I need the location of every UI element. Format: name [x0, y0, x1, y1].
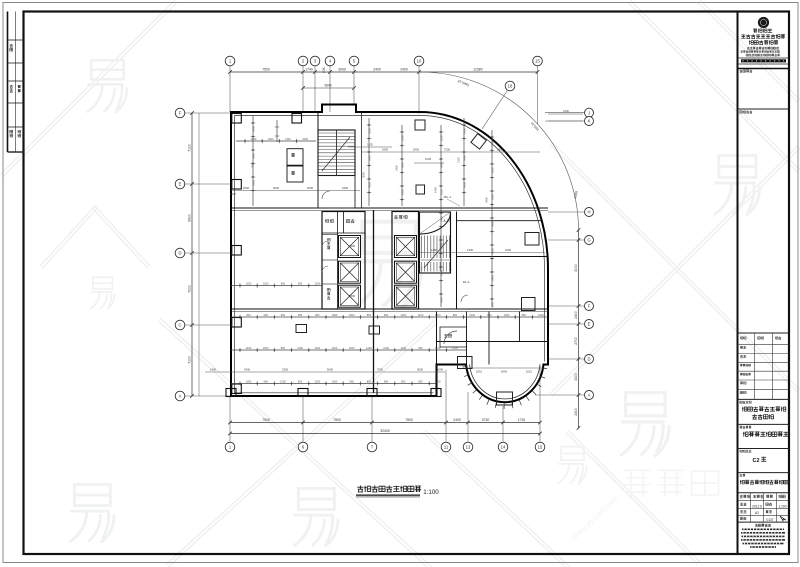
- svg-text:E: E: [588, 322, 591, 327]
- svg-text:2000: 2000: [243, 186, 250, 190]
- svg-text:1635: 1635: [367, 143, 373, 147]
- svg-text:11: 11: [444, 445, 449, 450]
- svg-text:1100: 1100: [435, 346, 441, 350]
- svg-text:1200: 1200: [332, 346, 338, 350]
- svg-text:1200: 1200: [314, 346, 320, 350]
- svg-text:2400: 2400: [463, 128, 467, 134]
- svg-text:3400: 3400: [491, 275, 495, 281]
- svg-text:2400: 2400: [401, 189, 405, 195]
- svg-text:850: 850: [522, 313, 527, 317]
- svg-text:2400: 2400: [505, 248, 512, 252]
- svg-text:3000: 3000: [273, 186, 280, 190]
- svg-text:7500: 7500: [262, 67, 270, 71]
- svg-text:2400: 2400: [349, 294, 356, 298]
- svg-text:1000: 1000: [263, 346, 269, 350]
- svg-text:1000: 1000: [435, 379, 441, 383]
- svg-text:DL-2: DL-2: [463, 280, 470, 284]
- svg-text:850: 850: [281, 346, 286, 350]
- svg-text:960: 960: [264, 379, 269, 383]
- svg-text:800: 800: [384, 313, 389, 317]
- svg-text:3300: 3300: [574, 373, 578, 381]
- svg-text:3400: 3400: [251, 162, 255, 168]
- svg-text:1400: 1400: [434, 187, 438, 193]
- svg-text:J: J: [588, 110, 590, 115]
- svg-text:7500: 7500: [377, 368, 384, 372]
- svg-text:5000: 5000: [327, 368, 334, 372]
- svg-text:1200: 1200: [246, 281, 252, 285]
- svg-text:3400: 3400: [440, 216, 444, 222]
- svg-text:960: 960: [487, 313, 492, 317]
- svg-text:C: C: [178, 323, 181, 328]
- svg-text:H: H: [587, 210, 590, 215]
- svg-text:D: D: [587, 357, 590, 362]
- svg-text:3400: 3400: [463, 155, 467, 161]
- svg-text:A-09: A-09: [443, 219, 450, 223]
- svg-text:5000: 5000: [501, 370, 508, 374]
- svg-text:3400: 3400: [485, 197, 489, 203]
- svg-text:G: G: [587, 238, 590, 243]
- svg-text:2400: 2400: [395, 165, 399, 171]
- svg-text:1500: 1500: [563, 109, 569, 113]
- svg-text:1200: 1200: [263, 281, 269, 285]
- svg-text:1000: 1000: [314, 281, 320, 285]
- svg-text:2300: 2300: [342, 186, 349, 190]
- svg-text:800: 800: [246, 313, 251, 317]
- svg-text:1200: 1200: [280, 379, 286, 383]
- svg-text:1200: 1200: [251, 137, 257, 141]
- svg-text:1800: 1800: [491, 248, 495, 254]
- svg-text:1:100: 1:100: [423, 489, 439, 496]
- svg-text:3400: 3400: [440, 162, 444, 168]
- svg-text:800: 800: [298, 379, 303, 383]
- svg-text:A: A: [179, 394, 182, 399]
- svg-text:A2: A2: [755, 511, 759, 515]
- svg-text:1100: 1100: [401, 346, 407, 350]
- svg-text:800: 800: [315, 313, 320, 317]
- svg-text:3000: 3000: [574, 264, 578, 272]
- svg-text:18: 18: [508, 84, 513, 89]
- svg-text:K: K: [588, 119, 591, 124]
- svg-text:1000: 1000: [469, 313, 475, 317]
- svg-text:800: 800: [453, 313, 458, 317]
- svg-text:1730: 1730: [518, 418, 526, 422]
- svg-text:D: D: [178, 251, 181, 256]
- svg-text:1200: 1200: [504, 313, 510, 317]
- svg-text:1000: 1000: [246, 379, 252, 383]
- svg-text:960: 960: [384, 379, 389, 383]
- svg-text:1200: 1200: [366, 346, 372, 350]
- svg-text:1200: 1200: [452, 346, 458, 350]
- svg-text:1100: 1100: [418, 313, 424, 317]
- svg-text:1000: 1000: [349, 313, 355, 317]
- svg-text:7500: 7500: [262, 418, 270, 422]
- svg-text:3400: 3400: [440, 243, 444, 249]
- svg-text:3400: 3400: [368, 182, 372, 188]
- svg-text:3000: 3000: [362, 172, 366, 178]
- svg-text:3730: 3730: [482, 418, 490, 422]
- svg-text:3300: 3300: [282, 368, 289, 372]
- svg-text:A: A: [588, 393, 591, 398]
- svg-text:1100: 1100: [383, 346, 389, 350]
- svg-text:2400: 2400: [497, 148, 504, 152]
- svg-text:5000: 5000: [417, 368, 424, 372]
- svg-text:3400: 3400: [491, 302, 495, 308]
- svg-text:1000: 1000: [538, 313, 544, 317]
- svg-text:1200: 1200: [400, 313, 406, 317]
- svg-text:2400: 2400: [373, 67, 381, 71]
- svg-text:7500: 7500: [405, 418, 413, 422]
- svg-text:960: 960: [264, 313, 269, 317]
- svg-text:850: 850: [298, 281, 303, 285]
- svg-text:3000: 3000: [307, 186, 314, 190]
- svg-text:800: 800: [401, 379, 406, 383]
- svg-text:2700: 2700: [574, 337, 578, 345]
- svg-text:11580: 11580: [473, 67, 482, 71]
- svg-text:7200: 7200: [187, 285, 191, 293]
- svg-text:850: 850: [298, 313, 303, 317]
- svg-text:1200: 1200: [297, 346, 303, 350]
- svg-text:960: 960: [350, 379, 355, 383]
- svg-text:2400: 2400: [349, 244, 356, 248]
- svg-text:2012.6: 2012.6: [752, 505, 762, 509]
- svg-text:1651: 1651: [526, 370, 533, 374]
- svg-text:7200: 7200: [444, 148, 451, 152]
- svg-text:850: 850: [367, 313, 372, 317]
- svg-text:E: E: [179, 182, 182, 187]
- svg-text:1450: 1450: [431, 248, 438, 252]
- svg-text:1000: 1000: [268, 137, 274, 141]
- svg-text:3400: 3400: [252, 153, 256, 159]
- svg-text:2400: 2400: [574, 408, 578, 416]
- svg-text:1400: 1400: [230, 192, 236, 196]
- svg-text:1800: 1800: [491, 167, 495, 173]
- svg-text:1:100: 1:100: [779, 505, 787, 509]
- svg-text:2400: 2400: [453, 418, 461, 422]
- svg-text:1200: 1200: [435, 313, 441, 317]
- svg-text:7100: 7100: [187, 144, 191, 152]
- svg-text:3400: 3400: [491, 221, 495, 227]
- svg-text:JSL-1: JSL-1: [443, 195, 451, 199]
- svg-text:1800: 1800: [440, 135, 444, 141]
- svg-text:2400: 2400: [400, 67, 408, 71]
- svg-text:2400: 2400: [252, 180, 256, 186]
- svg-text:1635: 1635: [425, 157, 432, 161]
- svg-text:800: 800: [367, 379, 372, 383]
- svg-text:32400: 32400: [380, 429, 390, 433]
- svg-text:F: F: [179, 111, 182, 116]
- svg-text:3400: 3400: [491, 140, 495, 146]
- svg-text:1740: 1740: [305, 67, 313, 71]
- svg-text:900: 900: [322, 67, 326, 73]
- svg-text:1000: 1000: [302, 137, 308, 141]
- svg-text:2400: 2400: [440, 297, 444, 303]
- svg-text:1000: 1000: [437, 368, 444, 372]
- svg-text:7100: 7100: [187, 356, 191, 364]
- svg-text:850: 850: [418, 379, 423, 383]
- svg-text:6900: 6900: [187, 214, 191, 222]
- svg-text:1400: 1400: [210, 368, 217, 372]
- svg-text:14: 14: [501, 445, 506, 450]
- svg-text:3400: 3400: [401, 162, 405, 168]
- svg-text:2400: 2400: [574, 311, 578, 319]
- svg-text:3400: 3400: [463, 182, 467, 188]
- svg-text:13: 13: [466, 445, 471, 450]
- svg-text:1100: 1100: [285, 137, 291, 141]
- svg-text:F: F: [588, 304, 591, 309]
- svg-text:1800: 1800: [440, 189, 444, 195]
- svg-text:0137: 0137: [766, 518, 773, 522]
- svg-text:960: 960: [418, 346, 423, 350]
- svg-text:15: 15: [538, 445, 543, 450]
- svg-text:960: 960: [281, 313, 286, 317]
- svg-text:2400: 2400: [382, 148, 389, 152]
- svg-text:3000: 3000: [338, 67, 346, 71]
- svg-text:1800: 1800: [368, 128, 372, 134]
- svg-text:2400: 2400: [413, 148, 420, 152]
- svg-text:2400: 2400: [491, 194, 495, 200]
- svg-text:1400: 1400: [467, 248, 474, 252]
- svg-text:1651: 1651: [476, 370, 483, 374]
- svg-text:1100: 1100: [315, 379, 321, 383]
- svg-text:2400: 2400: [244, 368, 251, 372]
- svg-text:7500: 7500: [333, 418, 341, 422]
- svg-text:3400: 3400: [440, 270, 444, 276]
- svg-text:1100: 1100: [246, 346, 252, 350]
- svg-text:15: 15: [535, 59, 540, 64]
- svg-text:C2: C2: [753, 458, 760, 464]
- svg-text:1800: 1800: [401, 135, 405, 141]
- svg-text:1200: 1200: [349, 346, 355, 350]
- svg-text:2150: 2150: [457, 157, 461, 163]
- svg-text:2400: 2400: [252, 126, 256, 132]
- svg-text:1000: 1000: [332, 313, 338, 317]
- svg-text:960: 960: [281, 281, 286, 285]
- svg-text:5640: 5640: [324, 83, 331, 87]
- svg-text:3400: 3400: [368, 155, 372, 161]
- svg-text:1000: 1000: [332, 379, 338, 383]
- svg-text:10: 10: [417, 59, 422, 64]
